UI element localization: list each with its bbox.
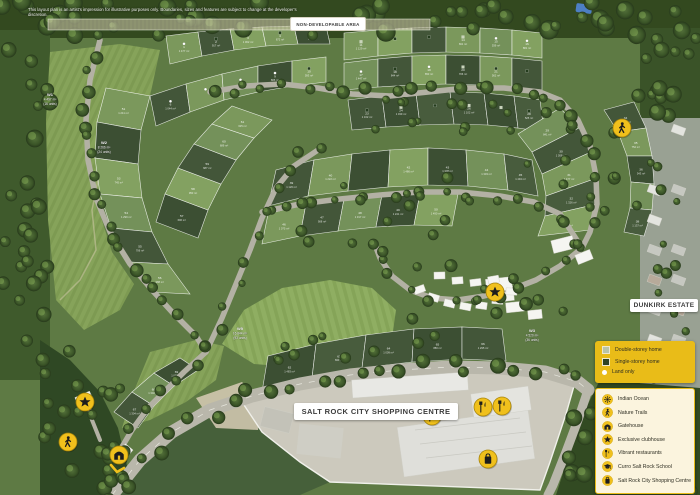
svg-text:988 m²: 988 m²	[156, 280, 164, 284]
legend-row-graduation-cap: Curro Salt Rock School	[602, 461, 690, 472]
svg-text:3: 3	[247, 36, 249, 40]
svg-text:W5: W5	[237, 326, 244, 331]
svg-text:4 497 m²: 4 497 m²	[44, 97, 57, 101]
single-storey-square-icon	[602, 358, 610, 366]
svg-text:4 520 m²: 4 520 m²	[526, 333, 539, 337]
svg-text:650 m²: 650 m²	[425, 72, 433, 76]
svg-text:689 m²: 689 m²	[220, 143, 228, 147]
svg-text:32: 32	[570, 197, 574, 201]
svg-text:15: 15	[494, 40, 498, 44]
svg-text:38: 38	[636, 220, 640, 224]
svg-text:543 m²: 543 m²	[637, 171, 645, 175]
svg-text:31: 31	[567, 173, 571, 177]
svg-text:50: 50	[434, 208, 438, 212]
svg-text:14: 14	[461, 38, 465, 42]
shopping-centre-label: SALT ROCK CITY SHOPPING CENTRE	[294, 403, 458, 420]
svg-text:880 m²: 880 m²	[433, 346, 441, 350]
svg-text:625 m²: 625 m²	[238, 124, 246, 128]
svg-text:46: 46	[282, 223, 286, 227]
svg-text:58: 58	[191, 187, 195, 191]
svg-text:20: 20	[461, 68, 465, 72]
svg-text:1 486 m²: 1 486 m²	[403, 169, 414, 173]
svg-text:43: 43	[446, 165, 450, 169]
svg-text:23: 23	[365, 111, 369, 115]
svg-text:(16 units): (16 units)	[43, 102, 56, 106]
svg-text:706 m²: 706 m²	[136, 248, 144, 252]
svg-text:1 326 m²: 1 326 m²	[566, 200, 577, 204]
svg-text:1 299 m²: 1 299 m²	[121, 215, 132, 219]
legend-row-shopping-bag: Salt Rock City Shopping Centre	[602, 475, 690, 486]
restaurant-icon	[602, 448, 613, 459]
svg-text:62: 62	[288, 366, 292, 370]
svg-text:53: 53	[117, 177, 121, 181]
svg-text:1 241 m²: 1 241 m²	[118, 111, 129, 115]
graduation-cap-icon	[602, 461, 613, 472]
svg-text:W3: W3	[529, 328, 536, 333]
svg-text:687 m²: 687 m²	[203, 166, 211, 170]
walker-icon	[602, 407, 613, 418]
legend-amenities: Indian OceanNature TrailsGatehouseExclus…	[595, 388, 695, 494]
non-developable-area-label: NON-DEVELOPABLE AREA	[290, 17, 366, 31]
legend-label: Curro Salt Rock School	[618, 464, 672, 470]
svg-text:1 102 m²: 1 102 m²	[464, 110, 475, 114]
legend-row-gatehouse: Gatehouse	[602, 421, 690, 432]
legend-row-land-only-dot: Land only	[602, 369, 689, 375]
svg-text:11: 11	[359, 43, 362, 47]
svg-text:4: 4	[279, 34, 281, 38]
legend-label: Exclusive clubhouse	[618, 437, 665, 443]
legend-label: Single-storey home	[615, 359, 660, 365]
svg-text:42: 42	[407, 166, 411, 170]
svg-text:691 m²: 691 m²	[459, 42, 467, 46]
svg-text:36: 36	[639, 168, 643, 172]
svg-text:1 494 m²: 1 494 m²	[515, 177, 526, 181]
svg-text:21: 21	[494, 70, 498, 74]
svg-text:65: 65	[436, 342, 440, 346]
svg-text:752 m²: 752 m²	[632, 145, 640, 149]
legend-row-star: Exclusive clubhouse	[602, 434, 690, 445]
legend-label: Double-storey home	[615, 347, 662, 353]
svg-text:696 m²: 696 m²	[178, 218, 186, 222]
svg-text:66: 66	[481, 342, 485, 346]
svg-text:W2: W2	[101, 140, 108, 145]
svg-text:1 137 m²: 1 137 m²	[632, 223, 643, 227]
svg-text:1 241 m²: 1 241 m²	[393, 212, 404, 216]
svg-text:26: 26	[467, 107, 471, 111]
star-icon	[602, 434, 613, 445]
svg-text:19: 19	[427, 68, 431, 72]
svg-text:1 126 m²: 1 126 m²	[286, 185, 297, 189]
svg-text:539 m²: 539 m²	[492, 43, 500, 47]
svg-text:40: 40	[329, 173, 333, 177]
svg-text:49: 49	[396, 208, 400, 212]
svg-text:1 062 m²: 1 062 m²	[243, 40, 254, 44]
svg-text:672 m²: 672 m²	[276, 38, 284, 42]
svg-text:917 m²: 917 m²	[212, 44, 220, 48]
map-legend: Double-storey homeSingle-storey homeLand…	[595, 341, 695, 494]
svg-text:1 075 m²: 1 075 m²	[279, 226, 290, 230]
legend-row-restaurant: Vibrant restaurants	[602, 448, 690, 459]
legend-row-walker: Nature Trails	[602, 407, 690, 418]
svg-text:16: 16	[525, 42, 529, 46]
svg-text:9: 9	[274, 74, 276, 78]
svg-text:1 304 m²: 1 304 m²	[129, 411, 140, 415]
svg-text:35: 35	[634, 141, 638, 145]
legend-home-types: Double-storey homeSingle-storey homeLand…	[595, 341, 695, 383]
svg-text:525 m²: 525 m²	[525, 116, 533, 120]
svg-text:56: 56	[158, 276, 162, 280]
svg-text:593 m²: 593 m²	[305, 73, 313, 77]
estate-masterplan-canvas: 11 477 m²2917 m²31 062 m²4672 m²5713 m²6…	[0, 0, 700, 495]
svg-text:6: 6	[170, 103, 172, 107]
svg-text:61: 61	[241, 120, 245, 124]
svg-text:841 m²: 841 m²	[543, 132, 551, 136]
legend-label: Nature Trails	[618, 410, 647, 416]
svg-text:1 333 m²: 1 333 m²	[481, 172, 492, 176]
svg-text:16 844 m²: 16 844 m²	[233, 331, 247, 335]
svg-text:48: 48	[358, 211, 362, 215]
svg-text:47: 47	[320, 216, 324, 220]
legend-label: Land only	[612, 369, 635, 375]
svg-text:(93 units): (93 units)	[233, 336, 246, 340]
svg-text:706 m²: 706 m²	[459, 72, 467, 76]
land-only-dot-icon	[602, 370, 607, 375]
svg-text:1 295 m²: 1 295 m²	[478, 346, 489, 350]
legend-label: Salt Rock City Shopping Centre	[618, 478, 691, 484]
disclaimer-text: This layout plan is an artist's impressi…	[28, 8, 308, 17]
svg-text:45: 45	[519, 173, 523, 177]
svg-text:1 009 m²: 1 009 m²	[383, 350, 394, 354]
svg-text:24: 24	[399, 108, 403, 112]
svg-text:(36 units): (36 units)	[525, 338, 538, 342]
svg-text:18: 18	[393, 70, 397, 74]
legend-row-double-storey-square: Double-storey home	[602, 346, 689, 354]
svg-text:745 m²: 745 m²	[115, 180, 123, 184]
legend-row-single-storey-square: Single-storey home	[602, 358, 689, 366]
svg-text:30: 30	[559, 150, 563, 154]
svg-text:1 039 m²: 1 039 m²	[396, 112, 407, 116]
svg-text:29: 29	[546, 129, 550, 133]
svg-text:950 m²: 950 m²	[189, 191, 197, 195]
sun-icon	[602, 394, 613, 405]
svg-text:1 222 m²: 1 222 m²	[325, 177, 336, 181]
svg-text:55: 55	[138, 245, 142, 249]
legend-label: Vibrant restaurants	[618, 450, 662, 456]
svg-text:57: 57	[180, 214, 184, 218]
gatehouse-icon	[602, 421, 613, 432]
svg-text:59: 59	[206, 162, 210, 166]
double-storey-square-icon	[602, 346, 610, 354]
legend-label: Indian Ocean	[618, 396, 649, 402]
shopping-bag-icon	[602, 475, 613, 486]
svg-text:44: 44	[485, 168, 489, 172]
svg-text:10: 10	[307, 70, 311, 74]
legend-row-sun: Indian Ocean	[602, 394, 690, 405]
svg-text:(24 units): (24 units)	[97, 150, 110, 154]
svg-text:54: 54	[125, 211, 129, 215]
svg-text:39: 39	[290, 181, 294, 185]
svg-text:844 m²: 844 m²	[391, 74, 399, 78]
svg-text:69: 69	[175, 370, 179, 374]
svg-text:1 317 m²: 1 317 m²	[355, 215, 366, 219]
svg-text:51: 51	[122, 107, 126, 111]
svg-text:1 129 m²: 1 129 m²	[356, 47, 367, 51]
svg-text:67: 67	[133, 408, 137, 412]
svg-text:28: 28	[527, 112, 531, 116]
svg-text:562 m²: 562 m²	[492, 73, 500, 77]
svg-text:1 483 m²: 1 483 m²	[284, 369, 295, 373]
dunkirk-estate-label: DUNKIRK ESTATE	[630, 299, 698, 312]
svg-text:17: 17	[359, 73, 363, 77]
svg-text:8 266 m²: 8 266 m²	[98, 145, 111, 149]
svg-text:1 447 m²: 1 447 m²	[356, 77, 367, 81]
legend-label: Gatehouse	[618, 423, 643, 429]
svg-text:1 044 m²: 1 044 m²	[165, 106, 176, 110]
svg-text:1 490 m²: 1 490 m²	[431, 211, 442, 215]
svg-text:2: 2	[215, 40, 217, 44]
svg-text:1 477 m²: 1 477 m²	[179, 49, 190, 53]
svg-text:64: 64	[387, 347, 391, 351]
svg-text:881 m²: 881 m²	[523, 46, 531, 50]
svg-text:60: 60	[222, 140, 226, 144]
svg-text:908 m²: 908 m²	[318, 219, 326, 223]
svg-text:1 162 m²: 1 162 m²	[362, 115, 373, 119]
svg-text:1: 1	[183, 45, 185, 49]
svg-text:W1: W1	[47, 92, 54, 97]
